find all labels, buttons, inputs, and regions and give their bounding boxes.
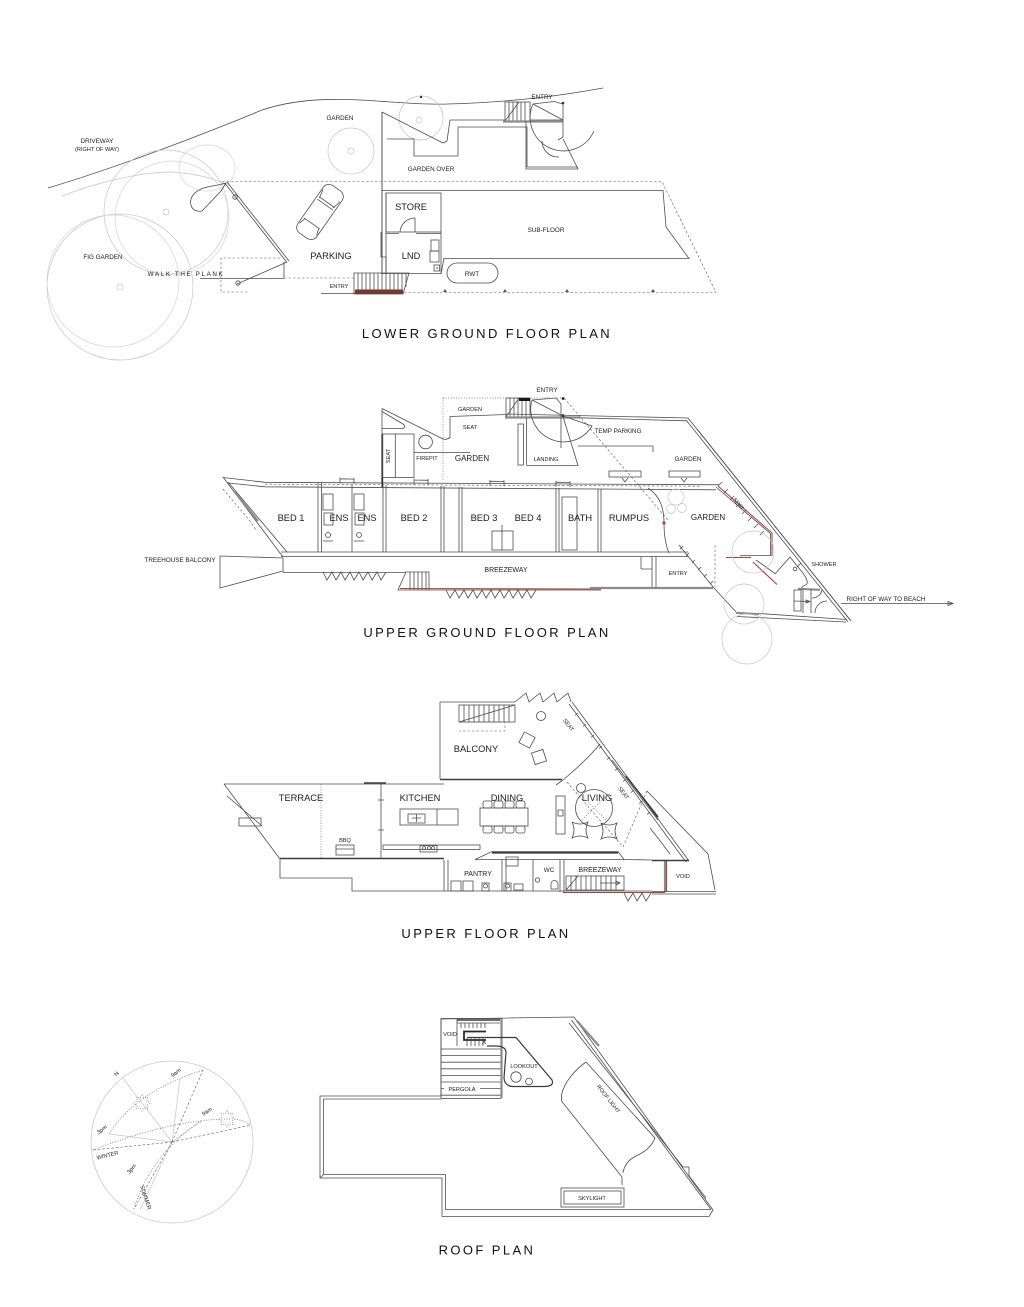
svg-text:ENTRY: ENTRY <box>330 284 349 290</box>
svg-text:TREEHOUSE BALCONY: TREEHOUSE BALCONY <box>144 557 216 564</box>
svg-text:GARDEN: GARDEN <box>691 513 725 522</box>
svg-text:LOWER GROUND FLOOR PLAN: LOWER GROUND FLOOR PLAN <box>362 326 612 341</box>
svg-text:FIG GARDEN: FIG GARDEN <box>83 254 123 261</box>
svg-text:UPPER FLOOR PLAN: UPPER FLOOR PLAN <box>401 926 570 941</box>
svg-text:GARDEN: GARDEN <box>327 115 354 122</box>
svg-text:BREEZEWAY: BREEZEWAY <box>578 867 622 874</box>
svg-text:VOID: VOID <box>676 874 690 880</box>
svg-text:TERRACE: TERRACE <box>279 793 323 803</box>
svg-text:(RIGHT OF WAY): (RIGHT OF WAY) <box>75 147 119 153</box>
svg-text:VOID: VOID <box>443 1032 457 1038</box>
svg-text:RWT: RWT <box>465 271 479 278</box>
svg-text:TEMP PARKING: TEMP PARKING <box>594 428 641 435</box>
svg-text:ENTRY: ENTRY <box>669 571 688 577</box>
svg-text:BALCONY: BALCONY <box>454 744 498 754</box>
svg-text:BBQ: BBQ <box>339 838 351 844</box>
svg-text:WC: WC <box>544 867 555 874</box>
svg-text:BED 3: BED 3 <box>471 513 498 523</box>
svg-text:SEAT: SEAT <box>463 425 478 431</box>
svg-text:BED 2: BED 2 <box>401 513 428 523</box>
svg-text:BED 1: BED 1 <box>278 513 305 523</box>
svg-text:PERGOLA: PERGOLA <box>448 1087 475 1093</box>
svg-text:DINING: DINING <box>491 793 524 803</box>
svg-text:UPPER GROUND FLOOR PLAN: UPPER GROUND FLOOR PLAN <box>363 625 610 640</box>
svg-text:LANDING: LANDING <box>534 457 559 463</box>
svg-text:BATH: BATH <box>568 513 592 523</box>
svg-text:ENTRY: ENTRY <box>536 387 558 394</box>
svg-text:DRIVEWAY: DRIVEWAY <box>81 138 115 145</box>
svg-text:BED 4: BED 4 <box>515 513 542 523</box>
svg-text:FIREPIT: FIREPIT <box>416 456 438 462</box>
svg-text:SEAT: SEAT <box>386 448 392 463</box>
svg-text:WALK THE PLANK: WALK THE PLANK <box>148 271 225 278</box>
svg-text:GARDEN: GARDEN <box>458 407 482 413</box>
svg-text:SUB-FLOOR: SUB-FLOOR <box>528 227 565 234</box>
svg-text:GARDEN OVER: GARDEN OVER <box>408 166 455 173</box>
svg-text:ENTRY: ENTRY <box>531 94 553 101</box>
svg-text:RUMPUS: RUMPUS <box>609 513 649 523</box>
svg-text:LIVING: LIVING <box>582 793 612 803</box>
svg-text:PARKING: PARKING <box>310 251 351 261</box>
svg-text:BREEZEWAY: BREEZEWAY <box>484 567 528 574</box>
svg-text:LND: LND <box>402 251 421 261</box>
svg-text:SKYLIGHT: SKYLIGHT <box>578 1196 606 1202</box>
svg-text:ENS: ENS <box>329 513 348 523</box>
svg-text:RIGHT OF WAY TO BEACH: RIGHT OF WAY TO BEACH <box>847 596 926 603</box>
svg-text:PANTRY: PANTRY <box>464 871 492 878</box>
svg-text:SHOWER: SHOWER <box>811 562 836 568</box>
svg-text:ROOF PLAN: ROOF PLAN <box>439 1243 536 1258</box>
svg-text:GARDEN: GARDEN <box>455 454 489 463</box>
svg-text:LOOKOUT: LOOKOUT <box>510 1064 538 1070</box>
svg-text:STORE: STORE <box>395 202 427 212</box>
svg-text:GARDEN: GARDEN <box>675 456 702 463</box>
svg-text:KITCHEN: KITCHEN <box>400 793 441 803</box>
svg-text:ENS: ENS <box>357 513 376 523</box>
